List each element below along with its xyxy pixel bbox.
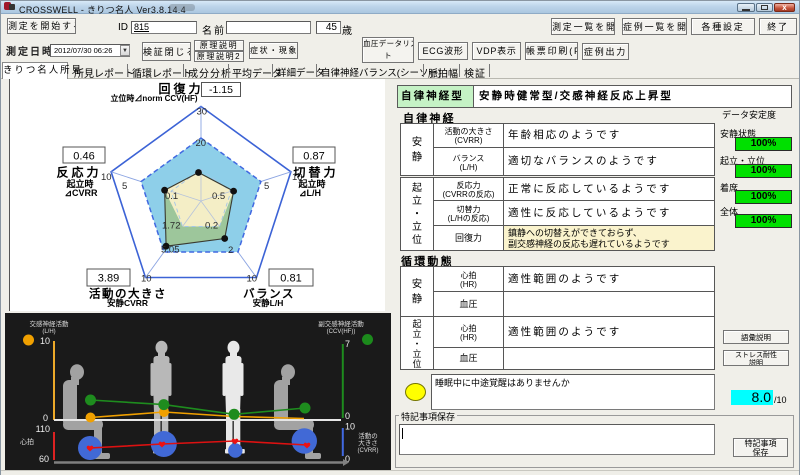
svg-text:5.05: 5.05 — [161, 245, 180, 256]
svg-text:10: 10 — [247, 274, 258, 285]
svg-text:10: 10 — [141, 274, 152, 285]
svg-text:0.5: 0.5 — [212, 191, 225, 202]
svg-text:(L/H): (L/H) — [42, 329, 55, 335]
svg-text:30: 30 — [197, 107, 208, 118]
svg-text:0.1: 0.1 — [165, 191, 178, 202]
svg-text:5: 5 — [122, 181, 127, 192]
svg-text:0.81: 0.81 — [280, 273, 301, 285]
svg-text:反応力: 反応力 — [56, 165, 101, 180]
svg-text:(CCV(HF)): (CCV(HF)) — [327, 329, 356, 335]
svg-text:5: 5 — [264, 181, 269, 192]
svg-text:3.89: 3.89 — [98, 273, 119, 285]
svg-text:大きさ: 大きさ — [358, 438, 378, 447]
svg-text:0.87: 0.87 — [303, 151, 324, 163]
svg-text:立位時⊿norm CCV(HF): 立位時⊿norm CCV(HF) — [110, 93, 197, 103]
svg-text:7: 7 — [345, 339, 350, 349]
svg-text:心拍: 心拍 — [20, 437, 34, 446]
svg-text:安静L/H: 安静L/H — [253, 298, 284, 308]
svg-text:0.46: 0.46 — [73, 151, 94, 163]
svg-text:0.2: 0.2 — [205, 221, 218, 232]
svg-text:0: 0 — [43, 413, 48, 423]
svg-text:60: 60 — [39, 454, 49, 464]
svg-text:安静CVRR: 安静CVRR — [107, 298, 148, 308]
svg-text:(CVRR): (CVRR) — [358, 448, 379, 454]
svg-text:1.72: 1.72 — [162, 221, 181, 232]
svg-text:10: 10 — [345, 422, 355, 432]
svg-text:110: 110 — [36, 424, 50, 434]
svg-text:20: 20 — [196, 138, 207, 149]
svg-text:⊿CVRR: ⊿CVRR — [64, 188, 98, 198]
svg-text:0: 0 — [345, 411, 350, 421]
svg-text:活動の: 活動の — [358, 431, 378, 440]
svg-text:⊿L/H: ⊿L/H — [299, 188, 321, 198]
svg-text:10: 10 — [40, 336, 50, 346]
svg-text:副交感神経活動: 副交感神経活動 — [318, 319, 364, 328]
svg-text:-1.15: -1.15 — [209, 84, 233, 96]
svg-text:切替力: 切替力 — [293, 165, 338, 180]
svg-text:10: 10 — [101, 172, 112, 183]
svg-text:交感神経活動: 交感神経活動 — [30, 319, 70, 328]
svg-text:2: 2 — [228, 245, 233, 256]
